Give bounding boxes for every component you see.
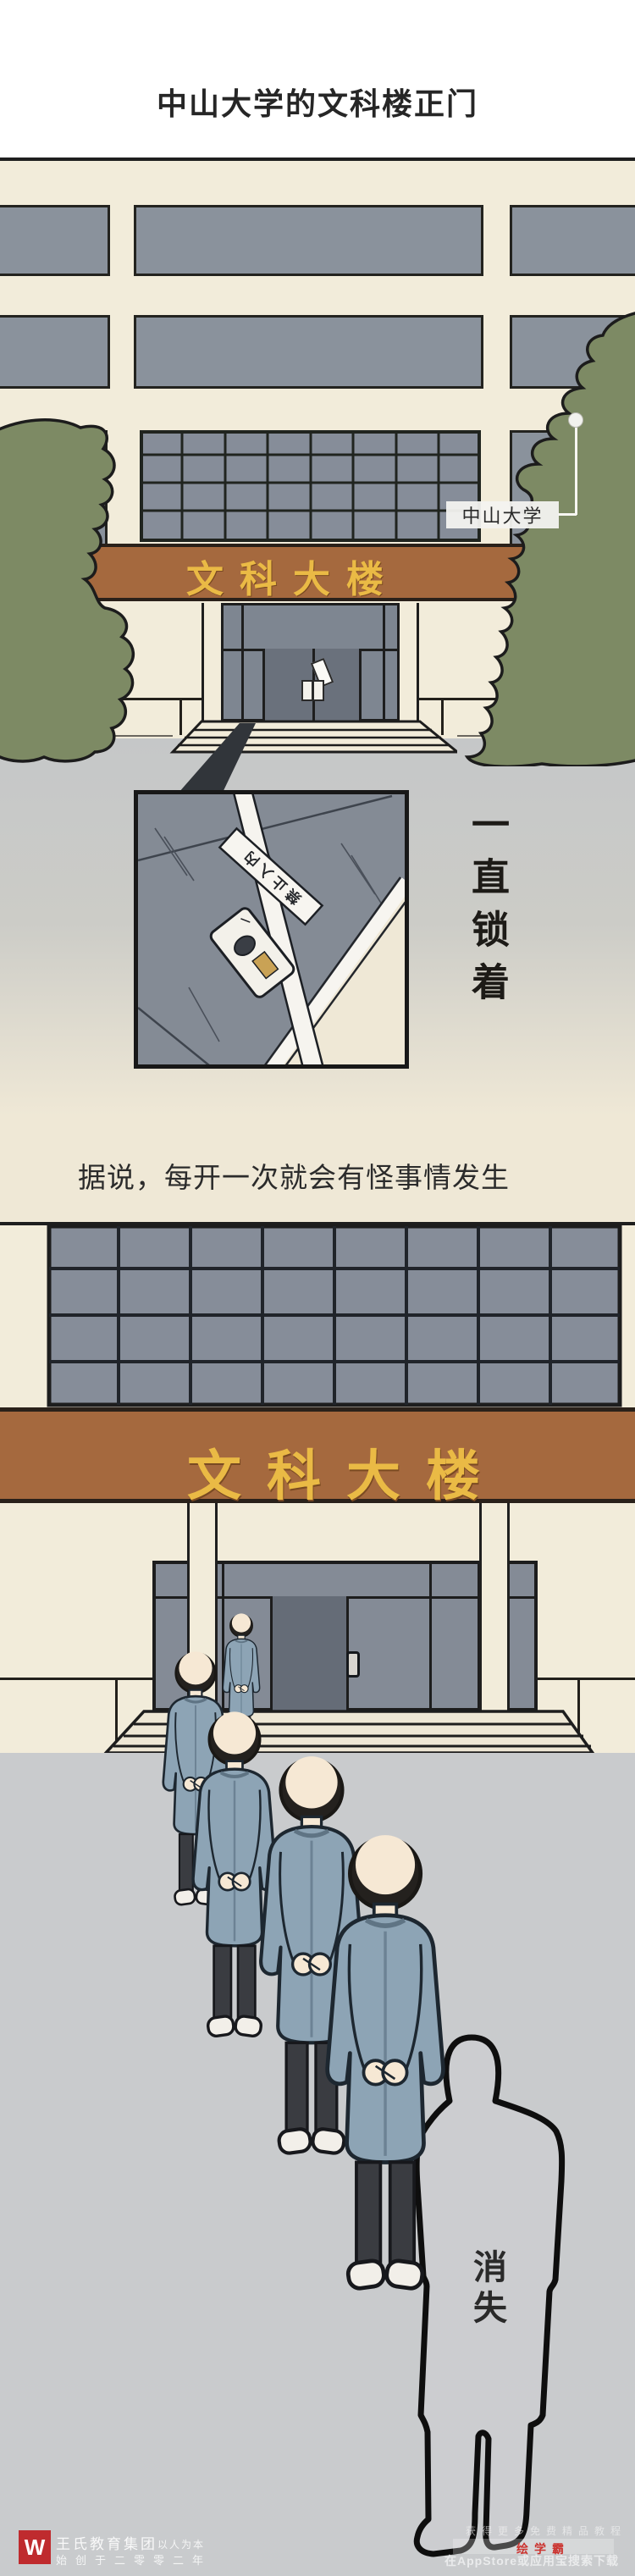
- door-closeup-inset: 禁止入内: [134, 790, 409, 1069]
- grid-window-2: [47, 1224, 622, 1407]
- callout-line: [575, 420, 577, 515]
- footer-subline: 始创于二零零二年: [56, 2551, 212, 2568]
- caption-text: 据说，每开一次就会有怪事情发生: [78, 1155, 510, 1196]
- callout-line: [558, 513, 577, 516]
- footer-right-line1: 获得更多免费精品教程: [466, 2523, 627, 2538]
- page-title: 中山大学的文科楼正门: [0, 80, 635, 124]
- left-tree: [0, 420, 133, 761]
- disappear-note: 消失: [462, 2249, 511, 2330]
- queue-scene: [0, 1600, 635, 2576]
- right-tree: [467, 312, 635, 766]
- callout-label: 中山大学: [446, 501, 559, 528]
- window-band: [134, 205, 483, 276]
- window-band: [510, 205, 635, 276]
- footer-right-line3: 在AppStore或应用宝搜索下载: [444, 2552, 619, 2569]
- comic-page: 中山大学的文科楼正门 文科大楼: [0, 0, 635, 2576]
- brand-logo: W: [19, 2530, 51, 2564]
- locked-note: 一直锁着: [460, 804, 515, 1014]
- brand-logo-letter-icon: W: [25, 2536, 46, 2558]
- footer-slogan: 以人为本: [157, 2537, 205, 2551]
- door-closeup-art: 禁止入内: [138, 794, 409, 1069]
- callout-marker-dot: [569, 413, 583, 427]
- footer-brand-left: 王氏教育集团: [56, 2532, 157, 2553]
- window-band: [0, 205, 110, 276]
- title-band: [0, 0, 635, 158]
- building-banner-2-text: 文科大楼: [187, 1433, 505, 1511]
- trees: [0, 305, 635, 766]
